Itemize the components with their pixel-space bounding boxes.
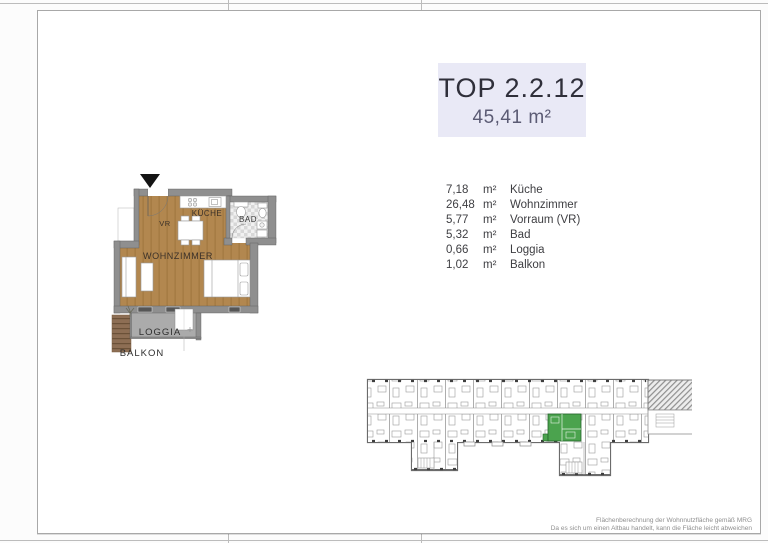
room-name: Bad bbox=[510, 228, 580, 243]
unit-rows bbox=[368, 380, 648, 474]
balcony-deck bbox=[112, 315, 131, 352]
plan-sheet: TOP 2.2.12 45,41 m² 7,18m²Küche 26,48m²W… bbox=[0, 0, 768, 543]
room-row: 26,48m²Wohnzimmer bbox=[446, 198, 580, 213]
room-area-list: 7,18m²Küche 26,48m²Wohnzimmer 5,77m²Vorr… bbox=[446, 183, 580, 273]
room-row: 5,77m²Vorraum (VR) bbox=[446, 213, 580, 228]
room-row: 1,02m²Balkon bbox=[446, 258, 580, 273]
sideboard bbox=[141, 263, 153, 291]
kitchen-counter bbox=[180, 196, 226, 208]
room-name: Wohnzimmer bbox=[510, 198, 580, 213]
footer-disclaimer: Flächenberechnung der Wohnnutzfläche gem… bbox=[551, 517, 752, 532]
room-name: Vorraum (VR) bbox=[510, 213, 580, 228]
entrance-arrow-icon bbox=[140, 174, 160, 188]
room-area-value: 0,66 bbox=[446, 243, 483, 258]
label-loggia: LOGGIA bbox=[139, 327, 181, 338]
pillow bbox=[240, 263, 248, 276]
label-bad: BAD bbox=[239, 215, 257, 224]
room-row: 7,18m²Küche bbox=[446, 183, 580, 198]
apartment-floorplan-drawing: VR KÜCHE BAD WOHNZIMMER LOGGIA BALKON bbox=[104, 163, 294, 363]
balcony-bumps bbox=[464, 442, 531, 446]
unit-title: TOP 2.2.12 bbox=[438, 73, 586, 104]
fold-line-top bbox=[0, 3, 768, 4]
building-overview bbox=[362, 372, 692, 482]
room-area-value: 5,32 bbox=[446, 228, 483, 243]
disclaimer-line-2: Da es sich um einen Altbau handelt, kann… bbox=[551, 525, 752, 533]
adjacent-niche bbox=[118, 208, 134, 241]
room-area-value: 26,48 bbox=[446, 198, 483, 213]
room-area-unit: m² bbox=[483, 183, 510, 198]
room-name: Balkon bbox=[510, 258, 580, 273]
room-area-unit: m² bbox=[483, 213, 510, 228]
corridor bbox=[368, 408, 648, 414]
adjacent-building bbox=[648, 380, 692, 434]
apartment-floorplan: VR KÜCHE BAD WOHNZIMMER LOGGIA BALKON bbox=[104, 163, 294, 363]
sofa bbox=[122, 257, 136, 297]
label-wohnzimmer: WOHNZIMMER bbox=[143, 251, 213, 261]
label-vorraum: VR bbox=[159, 219, 171, 228]
building-overview-drawing bbox=[362, 372, 692, 482]
room-area-unit: m² bbox=[483, 198, 510, 213]
unit-total-area: 45,41 m² bbox=[438, 107, 586, 129]
disclaimer-line-1: Flächenberechnung der Wohnnutzfläche gem… bbox=[551, 517, 752, 525]
room-row: 0,66m²Loggia bbox=[446, 243, 580, 258]
pillow bbox=[240, 282, 248, 295]
room-area-unit: m² bbox=[483, 228, 510, 243]
room-area-value: 1,02 bbox=[446, 258, 483, 273]
unit-title-box: TOP 2.2.12 45,41 m² bbox=[438, 63, 586, 137]
label-kueche: KÜCHE bbox=[192, 209, 223, 218]
highlighted-unit bbox=[543, 414, 581, 441]
room-area-unit: m² bbox=[483, 243, 510, 258]
room-area-value: 5,77 bbox=[446, 213, 483, 228]
room-name: Küche bbox=[510, 183, 580, 198]
room-area-value: 7,18 bbox=[446, 183, 483, 198]
fold-line-bottom bbox=[0, 540, 768, 541]
room-row: 5,32m²Bad bbox=[446, 228, 580, 243]
label-balkon: BALKON bbox=[120, 348, 165, 359]
room-area-unit: m² bbox=[483, 258, 510, 273]
room-name: Loggia bbox=[510, 243, 580, 258]
